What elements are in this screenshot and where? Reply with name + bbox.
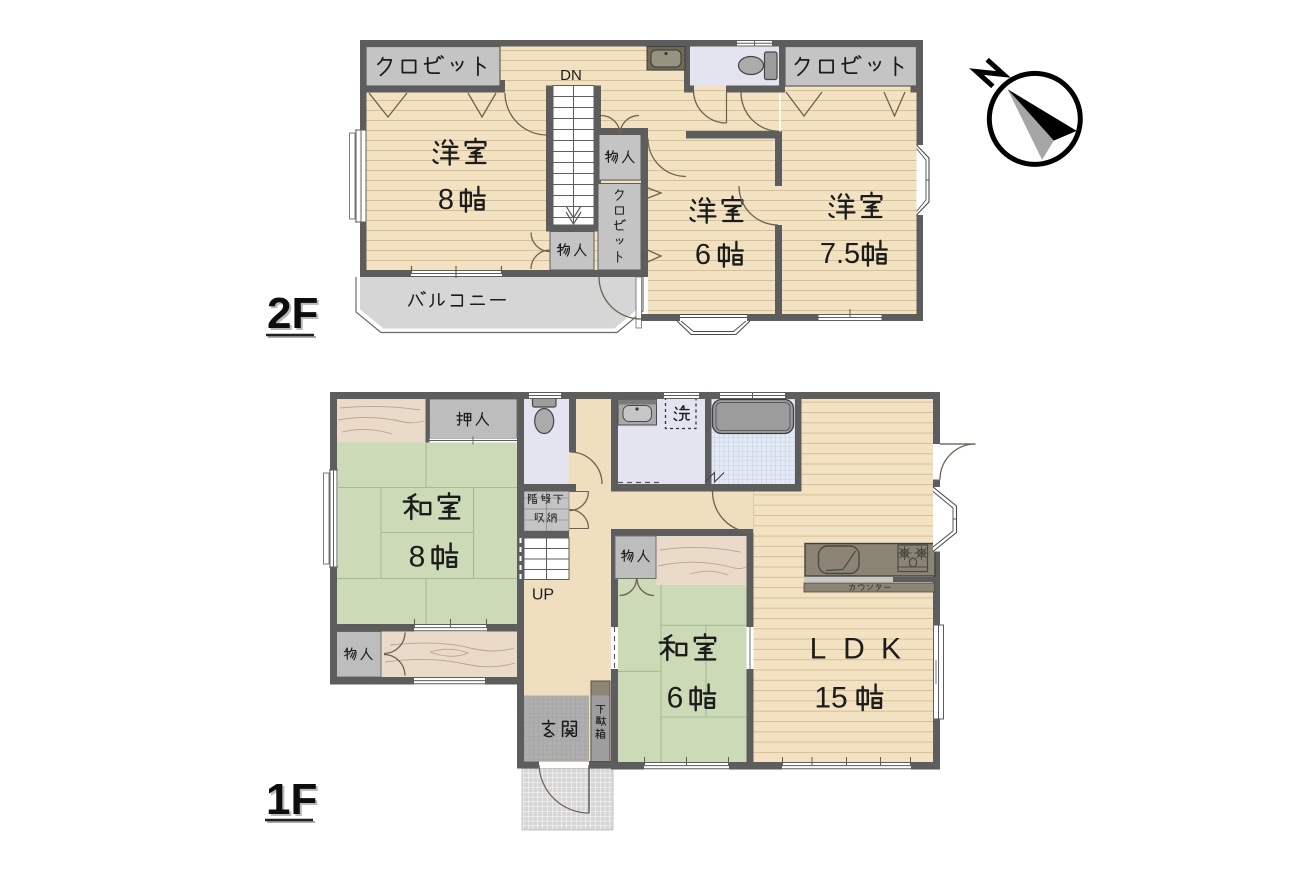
svg-text:D: D: [843, 633, 865, 666]
svg-text:DN: DN: [560, 67, 582, 84]
svg-text:8: 8: [438, 184, 454, 216]
svg-text:15: 15: [814, 682, 847, 715]
svg-text:7.5: 7.5: [820, 238, 860, 270]
svg-text:8: 8: [409, 541, 426, 574]
svg-text:2F: 2F: [267, 289, 318, 338]
svg-text:K: K: [881, 633, 901, 666]
svg-text:1F: 1F: [266, 775, 317, 824]
svg-text:UP: UP: [532, 587, 554, 604]
svg-text:6: 6: [667, 682, 684, 715]
svg-text:6: 6: [695, 239, 711, 271]
svg-text:L: L: [810, 633, 827, 666]
